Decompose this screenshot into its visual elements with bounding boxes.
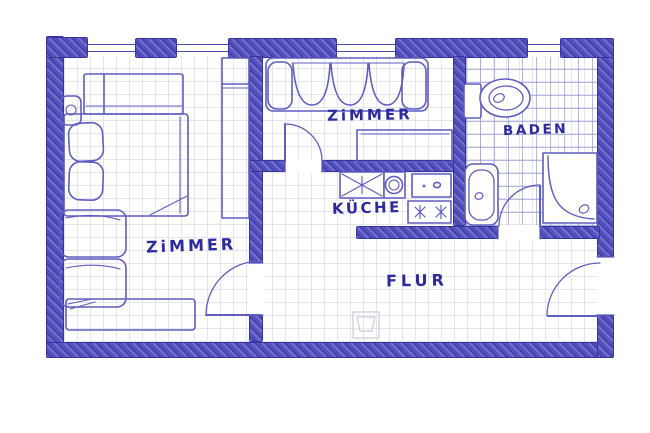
kitchen-label: KÜCHE bbox=[332, 198, 402, 218]
wardrobe bbox=[84, 74, 183, 114]
kitchen-round-basin bbox=[384, 172, 405, 198]
ink-layer bbox=[0, 0, 650, 433]
sideboard-table bbox=[357, 130, 452, 162]
pillow bbox=[68, 122, 104, 162]
kitchen-stove bbox=[408, 201, 451, 223]
kitchen-sink-counter bbox=[340, 172, 384, 198]
dresser bbox=[66, 299, 195, 330]
faint-pencil-square bbox=[353, 312, 379, 338]
bathtub bbox=[465, 164, 498, 225]
living-room-door bbox=[285, 124, 322, 173]
shower bbox=[543, 153, 597, 223]
toilet bbox=[464, 79, 530, 118]
bathroom-label: BADEN bbox=[503, 121, 568, 139]
entrance-door bbox=[547, 257, 614, 316]
tall-closet bbox=[222, 58, 249, 218]
kitchen-counter bbox=[412, 174, 451, 197]
sofa bbox=[266, 58, 428, 111]
floor-plan-sketch: ZiMMER ZiMMER KÜCHE BADEN FLUR bbox=[0, 0, 650, 433]
bedroom-door bbox=[206, 261, 264, 315]
hallway-label: FLUR bbox=[386, 270, 448, 290]
pillow bbox=[68, 161, 103, 200]
double-bed bbox=[64, 114, 188, 216]
bedroom-label: ZiMMER bbox=[146, 234, 237, 256]
living-room-label: ZiMMER bbox=[327, 105, 413, 124]
cabinet bbox=[60, 210, 126, 257]
bathroom-door bbox=[498, 185, 540, 240]
